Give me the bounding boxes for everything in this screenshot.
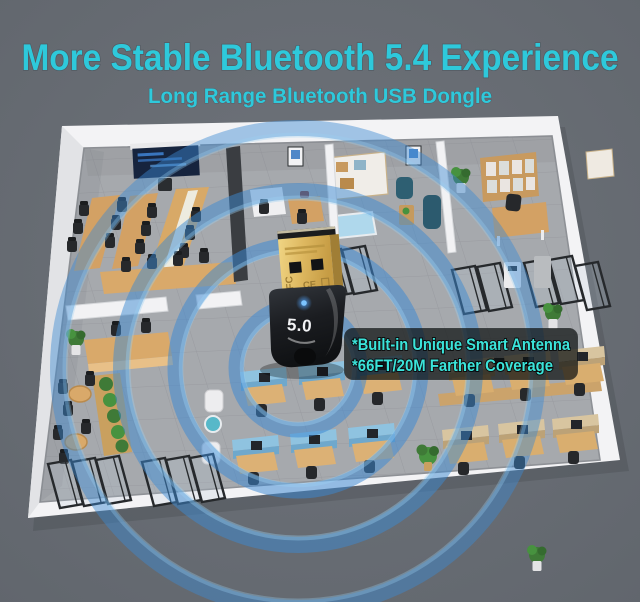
white-armchair — [205, 390, 223, 412]
corner-cabinet — [586, 149, 614, 179]
teal-coffee-table — [205, 416, 221, 432]
subheadline: Long Range Bluetooth USB Dongle — [148, 85, 492, 108]
fcc-mark: FC — [284, 276, 296, 290]
chair — [79, 201, 89, 216]
chair — [121, 257, 131, 272]
chair — [297, 209, 307, 224]
banner-canvas: FC CE 5.0 *Built-in Unique Smart Antenna… — [0, 0, 640, 602]
cabinet-shelf — [340, 178, 354, 189]
callout-line-1: *Built-in Unique Smart Antenna — [352, 335, 570, 354]
gray-cabinet — [534, 256, 551, 288]
callout-line-2: *66FT/20M Farther Coverage — [352, 356, 553, 375]
usb-pin-hole-left — [289, 261, 302, 273]
cafe-table — [69, 386, 91, 402]
product-banner: FC CE 5.0 *Built-in Unique Smart Antenna… — [0, 0, 640, 602]
lounge-chaise — [423, 195, 441, 229]
stool — [85, 371, 95, 386]
version-label: 5.0 — [286, 315, 312, 336]
stool — [81, 419, 91, 434]
chair — [141, 318, 151, 333]
chair — [73, 219, 83, 234]
executive-chair — [505, 193, 522, 211]
led-indicator — [301, 300, 307, 306]
poster-image — [291, 150, 300, 159]
callout-box: *Built-in Unique Smart Antenna *66FT/20M… — [344, 328, 578, 380]
chair — [67, 237, 77, 252]
table-plant — [403, 208, 410, 215]
chair — [141, 221, 151, 236]
desk-leg — [541, 230, 544, 240]
chair — [199, 248, 209, 263]
cabinet-shelf — [354, 160, 366, 170]
lounge-armchair — [396, 177, 413, 199]
usb-pin-hole-right — [311, 259, 324, 271]
bottom-recess — [294, 348, 316, 365]
chair — [147, 203, 157, 218]
headline: More Stable Bluetooth 5.4 Experience — [22, 37, 619, 78]
chair — [135, 239, 145, 254]
cabinet-shelf — [336, 162, 348, 172]
